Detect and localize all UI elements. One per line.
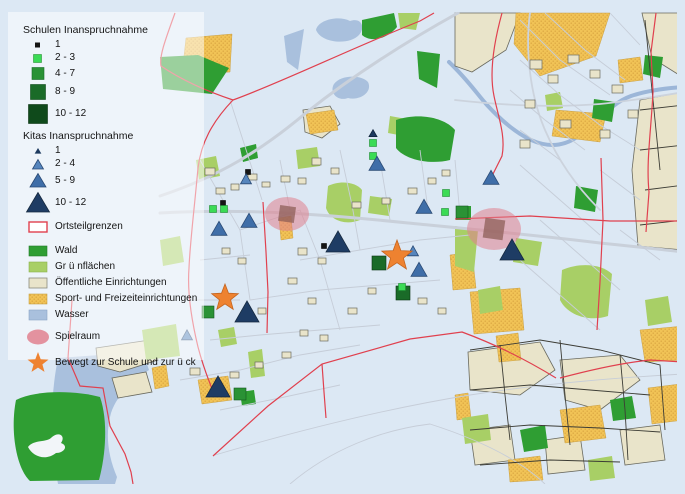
schule-marker-4-7[interactable]	[456, 206, 468, 218]
legend-item-ortsteilgrenzen: Ortsteilgrenzen	[21, 219, 204, 235]
boundary-swatch-icon	[21, 220, 55, 234]
legend-item-kita-5-9: 5 - 9	[21, 171, 204, 190]
wald-swatch-icon	[21, 244, 55, 258]
legend-item-star: Bewegt zur Schule und zur ü ck	[21, 351, 204, 375]
kita-size3-icon	[21, 172, 55, 189]
schule-marker-2-3[interactable]	[370, 140, 377, 147]
sport-swatch-icon	[21, 292, 55, 306]
schule-marker-1[interactable]	[221, 201, 226, 206]
schule-marker-8-9[interactable]	[372, 256, 386, 270]
spielraum-swatch-icon	[21, 328, 55, 346]
legend-star-shape	[28, 352, 49, 372]
school-size3-icon	[21, 66, 55, 81]
legend-item-spielraum: Spielraum	[21, 327, 204, 347]
legend-item-schule-1: 1	[21, 39, 204, 51]
wasser-swatch-icon	[21, 308, 55, 322]
legend-item-sport: Sport- und Freizeiteinrichtungen	[21, 291, 204, 307]
kita-size4-icon	[21, 191, 55, 214]
map-legend: Schulen Inanspruchnahme 1 2 - 3 4 - 7 8 …	[8, 12, 204, 360]
legend-item-kita-2-4: 2 - 4	[21, 157, 204, 171]
legend-item-schule-4-7: 4 - 7	[21, 65, 204, 82]
schule-marker-2-3[interactable]	[210, 206, 217, 213]
legend-item-wasser: Wasser	[21, 307, 204, 323]
schule-marker-1[interactable]	[322, 244, 327, 249]
spielraum-core[interactable]	[278, 205, 296, 223]
school-size2-icon	[21, 52, 55, 64]
schule-marker-2-3[interactable]	[442, 209, 449, 216]
kita-size2-icon	[21, 158, 55, 171]
schule-marker-2-3[interactable]	[443, 190, 450, 197]
legend-item-kita-1: 1	[21, 145, 204, 157]
map-application: Schulen Inanspruchnahme 1 2 - 3 4 - 7 8 …	[0, 0, 685, 494]
legend-item-schule-8-9: 8 - 9	[21, 82, 204, 102]
legend-item-schule-10-12: 10 - 12	[21, 102, 204, 126]
schule-marker-2-3[interactable]	[221, 206, 228, 213]
kita-size1-icon	[21, 146, 55, 156]
legend-item-gruenflaechen: Gr ü nflächen	[21, 259, 204, 275]
schule-marker-2-3[interactable]	[399, 284, 406, 291]
legend-schulen-title: Schulen Inanspruchnahme	[23, 24, 204, 36]
school-size5-icon	[21, 103, 55, 125]
school-route-star-icon	[21, 351, 55, 375]
legend-item-schule-2-3: 2 - 3	[21, 51, 204, 65]
school-size4-icon	[21, 83, 55, 101]
oeffentliche-swatch-icon	[21, 276, 55, 290]
legend-kitas-title: Kitas Inanspruchnahme	[23, 130, 204, 142]
legend-item-wald: Wald	[21, 243, 204, 259]
school-size1-icon	[21, 40, 55, 50]
gruenflaechen-swatch-icon	[21, 260, 55, 274]
spielraum-core[interactable]	[483, 218, 506, 241]
schule-marker-4-7[interactable]	[234, 388, 246, 400]
legend-item-kita-10-12: 10 - 12	[21, 190, 204, 215]
legend-item-oeffentliche: Öffentliche Einrichtungen	[21, 275, 204, 291]
